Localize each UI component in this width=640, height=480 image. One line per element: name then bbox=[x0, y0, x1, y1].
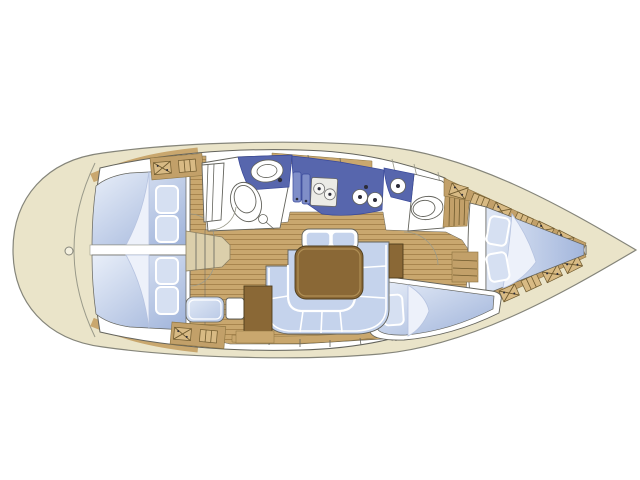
slatted-locker-icon bbox=[199, 330, 217, 343]
yacht-deck-plan: Sailing yacht interior layout plan, top … bbox=[0, 0, 640, 480]
pillow bbox=[156, 186, 178, 213]
pillow bbox=[156, 287, 178, 314]
bench-cushion bbox=[332, 232, 355, 247]
drain bbox=[358, 195, 362, 199]
drain bbox=[373, 198, 377, 202]
pillow bbox=[156, 216, 178, 242]
bow-corridor-steps bbox=[452, 252, 478, 282]
pillow bbox=[486, 251, 511, 282]
chart-table-base bbox=[236, 331, 274, 343]
aft-cabin-port bbox=[92, 170, 186, 245]
bench-cushion bbox=[306, 232, 330, 247]
chart-table bbox=[244, 286, 272, 332]
fridge-lid bbox=[293, 172, 301, 202]
stern-deck-fitting bbox=[65, 247, 73, 255]
wardrobe bbox=[202, 163, 224, 222]
slatted-locker-icon bbox=[178, 159, 196, 172]
yacht-layout-figure: Sailing yacht interior layout plan, top … bbox=[0, 0, 640, 480]
berth-frame bbox=[468, 203, 486, 297]
faucet bbox=[364, 185, 368, 189]
lid-latch bbox=[305, 200, 308, 203]
aft-cabin-starboard bbox=[92, 255, 186, 330]
strapped-locker-icon bbox=[174, 327, 192, 340]
aft-shelf-starboard bbox=[170, 322, 226, 349]
aft-cabin-divider-wall bbox=[90, 245, 190, 255]
pillow bbox=[486, 215, 511, 246]
saloon-table bbox=[295, 246, 363, 299]
side-locker bbox=[389, 244, 403, 278]
pillow bbox=[156, 258, 178, 284]
aft-head bbox=[202, 155, 292, 231]
nav-side-table bbox=[226, 298, 244, 319]
drain bbox=[396, 184, 400, 188]
strapped-locker-icon bbox=[153, 161, 171, 174]
fridge-lid bbox=[302, 174, 310, 204]
stove bbox=[310, 177, 337, 206]
faucet bbox=[278, 178, 282, 182]
aft-shelf-port bbox=[150, 153, 204, 179]
lid-latch bbox=[296, 198, 299, 201]
